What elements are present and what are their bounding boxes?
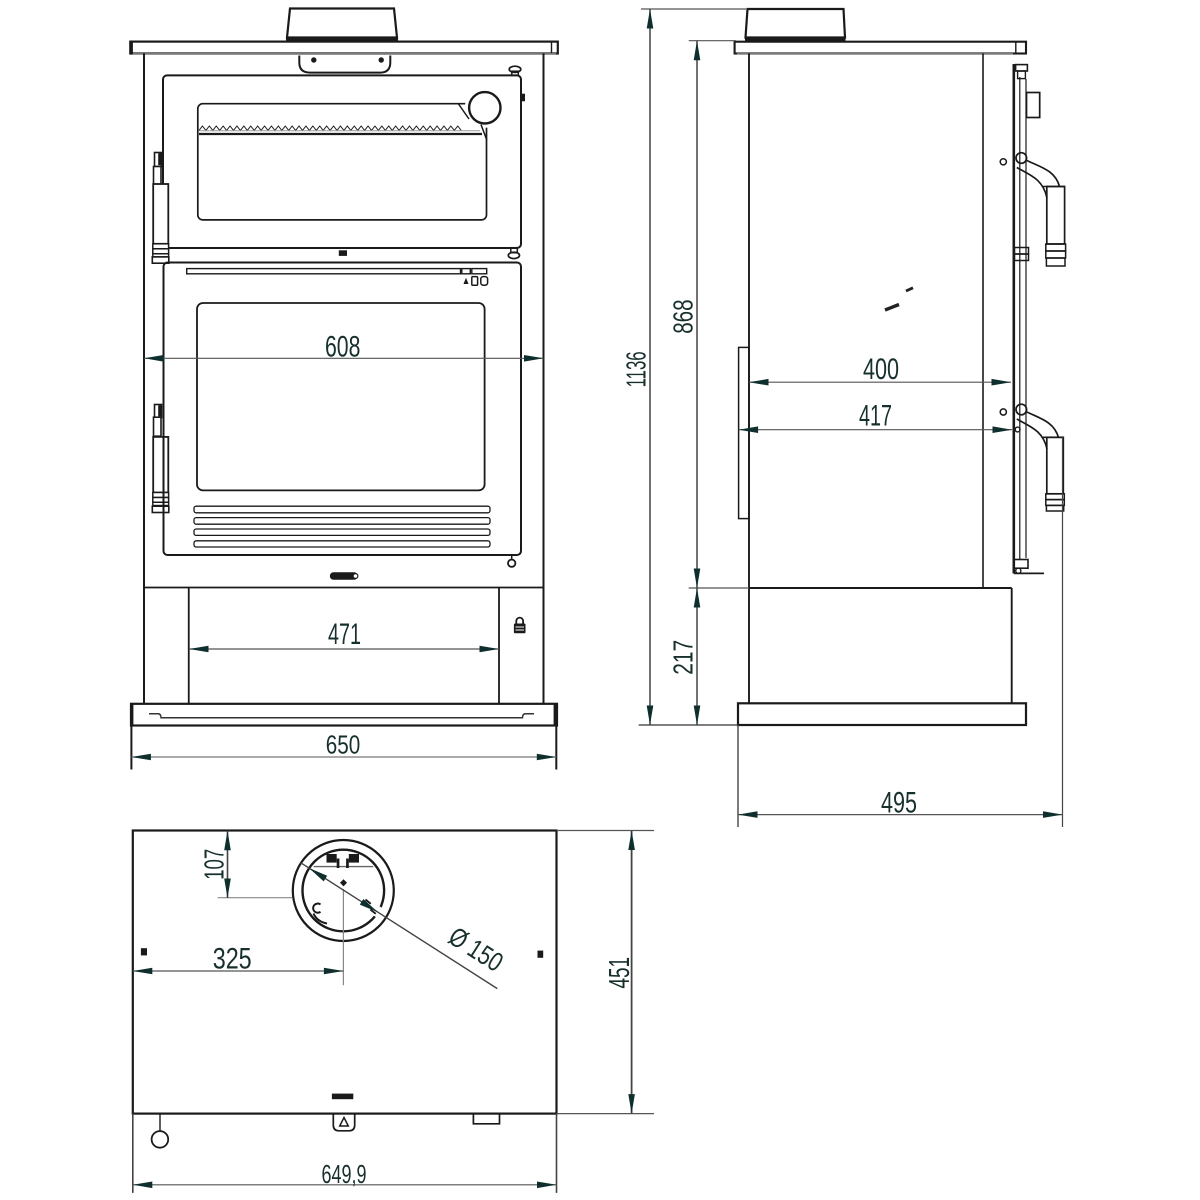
svg-text:608: 608	[325, 330, 360, 363]
svg-text:868: 868	[668, 299, 699, 333]
svg-text:649,9: 649,9	[322, 1159, 367, 1189]
svg-text:495: 495	[881, 787, 917, 820]
svg-text:1136: 1136	[621, 351, 652, 387]
svg-text:417: 417	[859, 400, 892, 433]
svg-text:451: 451	[604, 957, 636, 989]
svg-text:325: 325	[213, 943, 252, 976]
svg-text:650: 650	[326, 730, 361, 760]
svg-text:400: 400	[863, 353, 899, 386]
svg-text:471: 471	[328, 618, 361, 651]
svg-text:107: 107	[198, 849, 229, 880]
svg-text:217: 217	[668, 640, 699, 675]
